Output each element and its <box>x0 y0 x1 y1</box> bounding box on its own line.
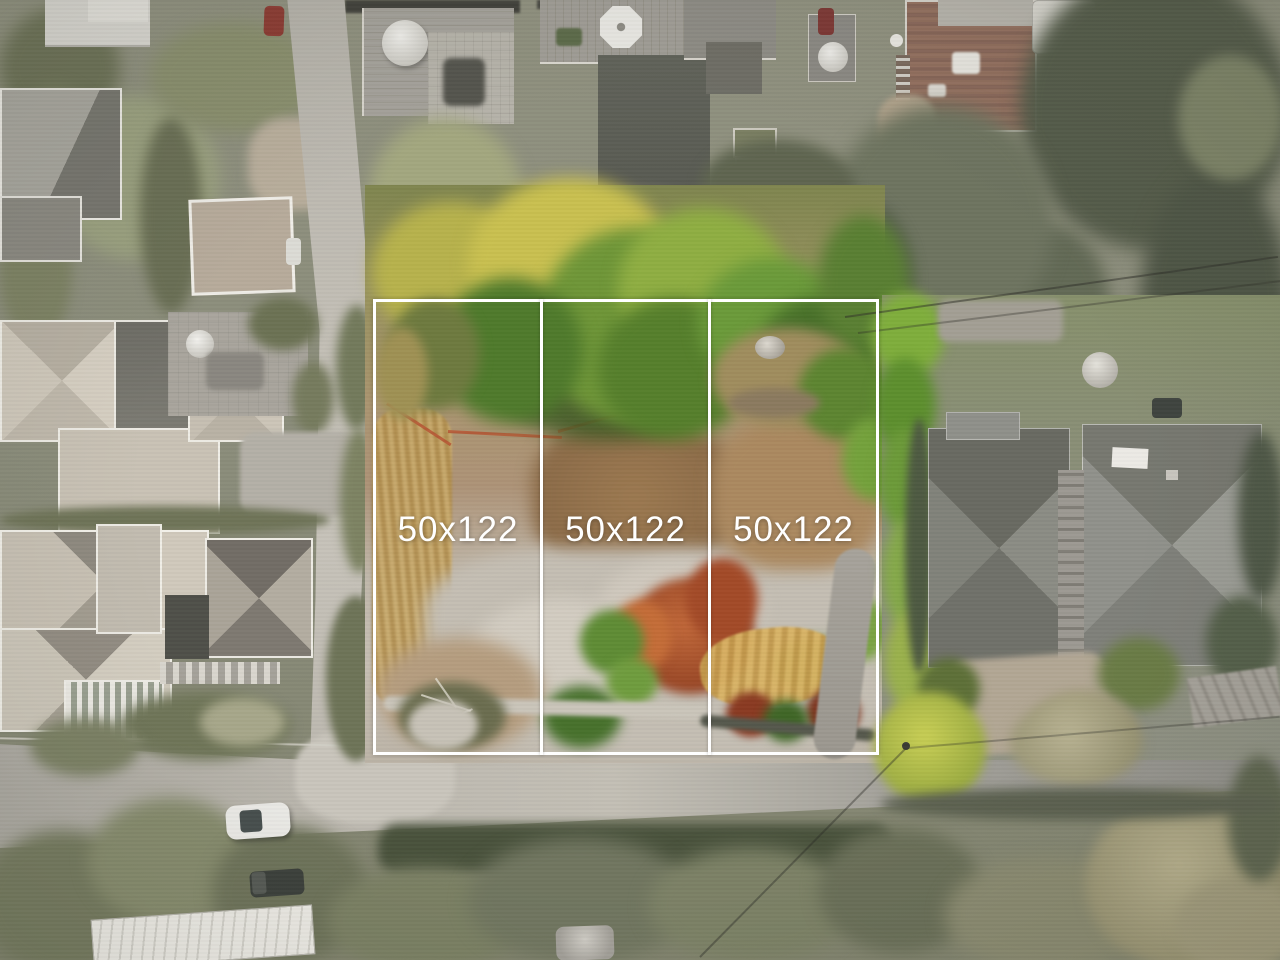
courtyard-dark <box>165 595 209 659</box>
bush <box>248 298 318 350</box>
roof-tarp <box>1112 447 1149 469</box>
khaki-tree <box>1010 700 1142 786</box>
red-car <box>818 8 834 35</box>
bush-row <box>30 718 140 776</box>
white-car-parked <box>286 238 301 265</box>
truck-cab <box>251 872 267 895</box>
red-car <box>263 6 284 37</box>
tree-light <box>1178 55 1280 180</box>
house-roof-dark <box>706 42 762 94</box>
gazebo-roof-small <box>555 925 614 960</box>
white-car-windshield <box>239 809 262 832</box>
patio-sofa <box>952 52 980 74</box>
roof-edge <box>938 0 1033 26</box>
right-house-a-wing <box>946 412 1020 440</box>
pale-bush <box>200 698 285 746</box>
building-white <box>88 0 148 22</box>
patio-umbrella <box>382 20 428 66</box>
lot-label-2: 50x122 <box>543 506 708 554</box>
hot-tub <box>1152 398 1182 418</box>
patio-chairs <box>556 28 582 46</box>
garden-umbrella <box>1082 352 1118 388</box>
bush <box>292 362 334 434</box>
deck-steps <box>160 662 280 684</box>
utility-pole <box>902 742 910 750</box>
chimney <box>1166 470 1178 480</box>
patio-furniture <box>443 58 485 106</box>
aerial-drone-photo: 50x122 50x122 50x122 <box>0 0 1280 960</box>
left-house1-roof <box>0 320 124 442</box>
yellow-tree-roadside <box>874 692 986 804</box>
hedge-shadow <box>880 788 1280 820</box>
garage-roof <box>188 196 295 296</box>
patio-table <box>928 84 946 97</box>
left-house2-gravelroof <box>96 524 162 634</box>
edge-trees <box>1238 432 1280 600</box>
satellite-dish <box>890 34 903 47</box>
patio-furniture <box>206 352 264 390</box>
lot-label-3: 50x122 <box>711 506 876 554</box>
patio-umbrella <box>818 42 848 72</box>
walkway-steps <box>1058 470 1084 660</box>
flat-roof-wing <box>0 196 82 262</box>
lot-label-1: 50x122 <box>376 506 540 554</box>
right-house-a <box>928 428 1070 668</box>
left-house2-garage <box>205 538 313 658</box>
